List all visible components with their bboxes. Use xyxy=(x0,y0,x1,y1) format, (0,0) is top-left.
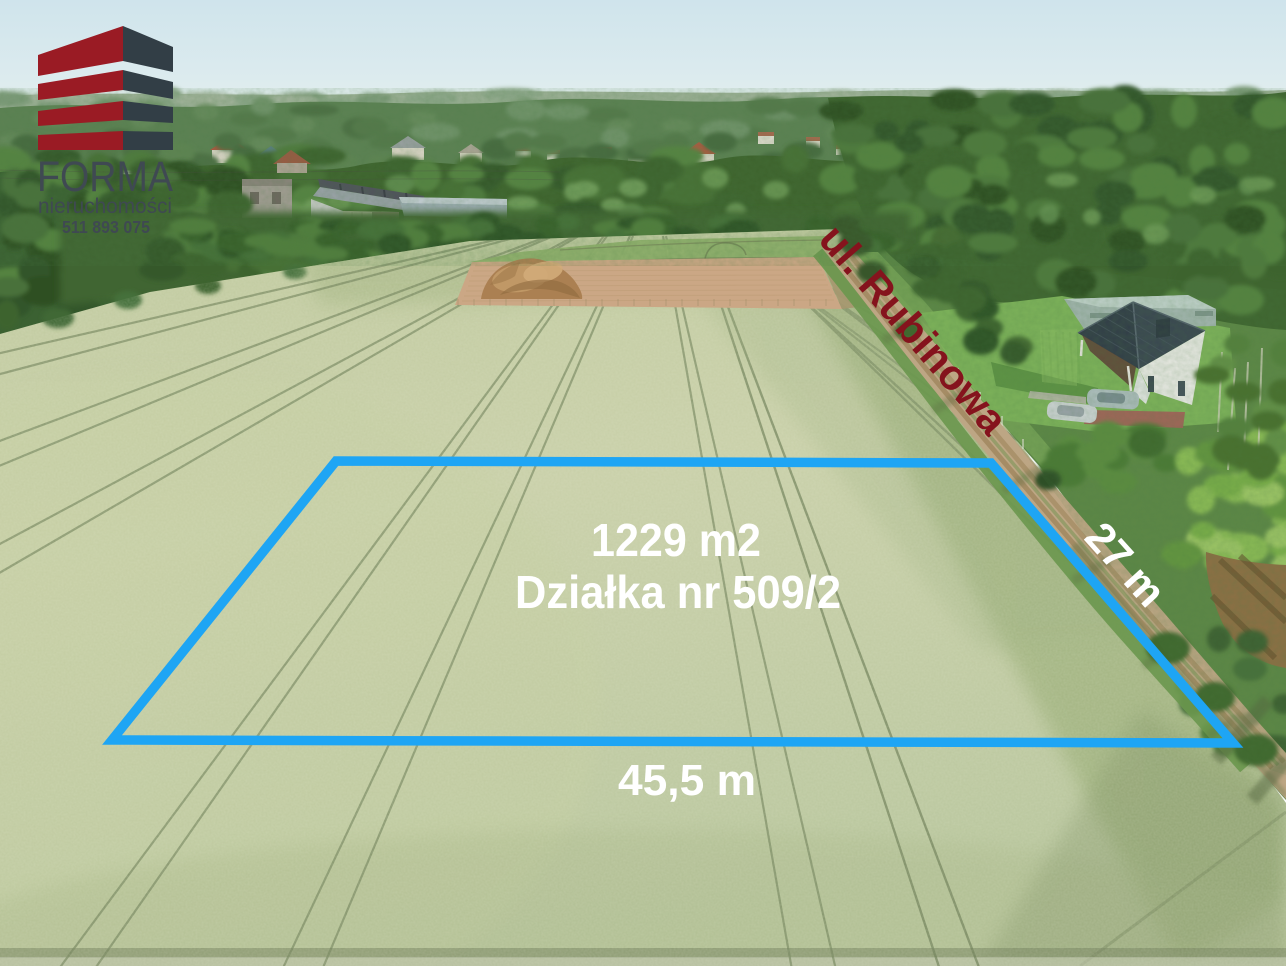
svg-text:nieruchomości: nieruchomości xyxy=(38,195,172,218)
svg-text:FORMA: FORMA xyxy=(37,153,173,201)
svg-text:1229 m2: 1229 m2 xyxy=(591,514,761,566)
svg-text:Działka nr 509/2: Działka nr 509/2 xyxy=(515,566,841,618)
svg-text:45,5 m: 45,5 m xyxy=(618,756,756,805)
svg-text:511 893 075: 511 893 075 xyxy=(62,217,150,237)
